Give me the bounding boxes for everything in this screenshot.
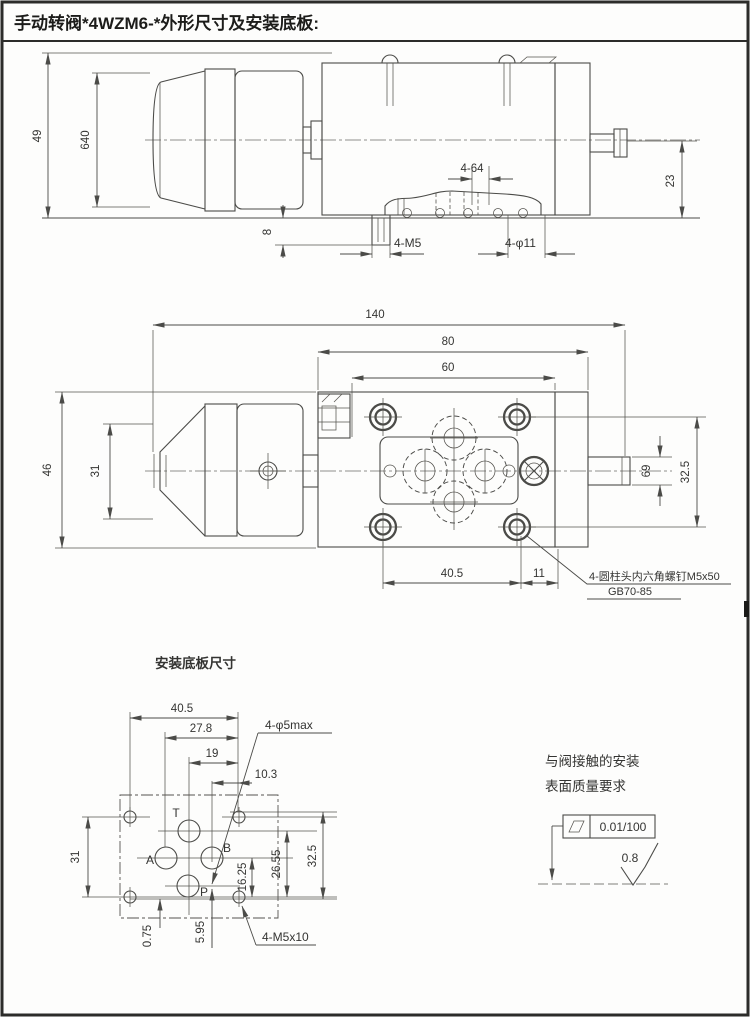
valve-body-plan (318, 392, 630, 547)
dim-16-25: 16.25 (237, 863, 249, 892)
flatness-tolerance-frame: 0.01/100 (552, 815, 655, 880)
dim-40-5: 40.5 (441, 568, 463, 580)
front-dimensions: 49 640 23 8 4-64 4-M5 4-φ11 (32, 53, 697, 258)
screw-note-line1: 4-圆柱头内六角螺钉M5x50 (589, 569, 720, 583)
dim-26-55: 26.55 (271, 850, 283, 879)
side-port-front (590, 134, 614, 152)
page-title: 手动转阀*4WZM6-*外形尺寸及安装底板: (14, 13, 319, 33)
dim-5-95: 5.95 (195, 921, 207, 943)
dim-80: 80 (442, 336, 455, 348)
dim-knob-dia: 640 (80, 130, 92, 149)
dim-19: 19 (206, 748, 219, 760)
mounting-screws (364, 398, 548, 546)
dim-140: 140 (365, 309, 384, 321)
plan-dimensions: 140 80 60 46 31 69 32.5 40.5 11 (42, 309, 731, 599)
catalog-page: 手动转阀*4WZM6-*外形尺寸及安装底板: (0, 0, 750, 1017)
roughness-symbol: 0.8 (621, 843, 658, 885)
plan-view: 140 80 60 46 31 69 32.5 40.5 11 (42, 309, 731, 599)
label-4-phi11: 4-φ11 (505, 236, 536, 250)
screw-note-line2: GB70-85 (608, 586, 652, 598)
plate-outline (120, 795, 278, 918)
surface-note-line2: 表面质量要求 (545, 779, 626, 794)
dim-side-port: 69 (641, 465, 653, 478)
label-screw-holes: 4-M5x10 (262, 930, 309, 944)
dim-27-8: 27.8 (190, 723, 212, 735)
print-mark (744, 601, 749, 617)
valve-body-front (322, 55, 627, 215)
dim-32-5: 32.5 (680, 461, 692, 483)
ports-plan (384, 408, 515, 530)
label-port-holes: 4-φ5max (265, 718, 313, 732)
dim-60: 60 (442, 362, 455, 374)
dim-31: 31 (90, 465, 102, 478)
dim-11: 11 (533, 568, 545, 580)
dim-top-holes: 4-64 (460, 163, 484, 175)
plate-ports: T A B P (146, 806, 231, 899)
plate-corner-holes (124, 807, 245, 907)
flatness-value: 0.01/100 (600, 820, 647, 834)
port-label-a: A (146, 853, 154, 867)
surface-quality-note: 与阀接触的安装 表面质量要求 0.01/100 0.8 (538, 753, 668, 885)
dim-32-5-plate: 32.5 (307, 845, 319, 867)
dim-8: 8 (262, 229, 274, 235)
dim-0-75: 0.75 (142, 925, 154, 947)
technical-drawing: 手动转阀*4WZM6-*外形尺寸及安装底板: (0, 0, 750, 1017)
dim-49: 49 (32, 130, 44, 143)
plate-title: 安装底板尺寸 (155, 655, 236, 671)
flatness-icon (569, 821, 584, 832)
port-label-p: P (200, 885, 208, 899)
plate-side-dimensions: 31 16.25 26.55 32.5 0.75 5.95 4-M5x10 (70, 812, 323, 948)
roughness-value: 0.8 (622, 851, 639, 865)
dim-10-3: 10.3 (255, 769, 277, 781)
plate-top-dimensions: 40.5 27.8 19 10.3 4-φ5max (130, 703, 332, 884)
plate-view: 安装底板尺寸 T A B P 40.5 (70, 655, 337, 948)
dim-31-plate: 31 (70, 851, 82, 864)
dim-40-5-plate: 40.5 (171, 703, 193, 715)
dim-46: 46 (42, 464, 54, 477)
port-label-t: T (172, 806, 180, 820)
detent-block (318, 394, 350, 438)
front-view: 49 640 23 8 4-64 4-M5 4-φ11 (32, 53, 700, 258)
surface-note-line1: 与阀接触的安装 (545, 753, 640, 769)
label-4-m5: 4-M5 (394, 236, 422, 250)
knob-plan (154, 404, 318, 536)
dim-23: 23 (665, 175, 677, 188)
